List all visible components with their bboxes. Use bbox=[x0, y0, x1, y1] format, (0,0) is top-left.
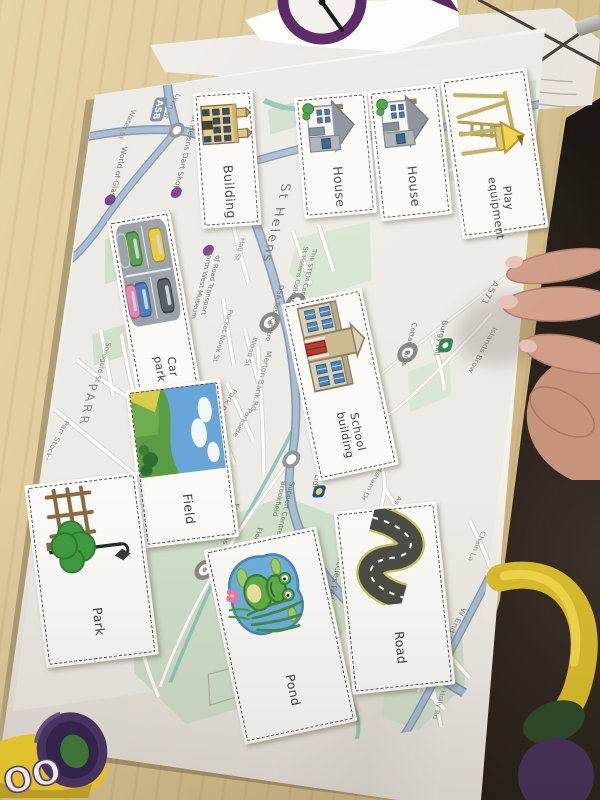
road-illustration bbox=[334, 501, 447, 611]
purple-object bbox=[518, 738, 594, 800]
card-label: Park bbox=[37, 575, 159, 668]
yellow-toy bbox=[478, 550, 600, 800]
card-park[interactable]: Park bbox=[24, 472, 159, 668]
photo-scene: A58 St Helens St Helens Central Water St… bbox=[0, 0, 600, 800]
card-label: School building bbox=[302, 385, 399, 481]
card-road[interactable]: Road bbox=[334, 501, 456, 695]
card-building[interactable]: Building bbox=[192, 89, 261, 229]
card-label: Field bbox=[137, 470, 239, 548]
card-label: House bbox=[374, 151, 452, 221]
spinner-ring bbox=[283, 0, 361, 39]
house-illustration bbox=[294, 91, 372, 161]
child-hand bbox=[440, 230, 600, 480]
building-illustration bbox=[192, 89, 256, 159]
house-illustration bbox=[367, 84, 446, 159]
card-house-2[interactable]: House bbox=[367, 84, 452, 222]
card-label: Play equipment bbox=[453, 159, 549, 239]
card-label: Building bbox=[197, 155, 262, 229]
field-illustration bbox=[126, 379, 232, 482]
play-equipment-illustration bbox=[440, 68, 539, 171]
card-house-1[interactable]: House bbox=[294, 91, 377, 219]
metal-clip bbox=[574, 14, 600, 36]
card-label: House bbox=[299, 155, 377, 219]
park-illustration bbox=[24, 472, 149, 589]
card-label: Road bbox=[344, 601, 455, 695]
playdoh-tub: OO bbox=[0, 688, 142, 800]
